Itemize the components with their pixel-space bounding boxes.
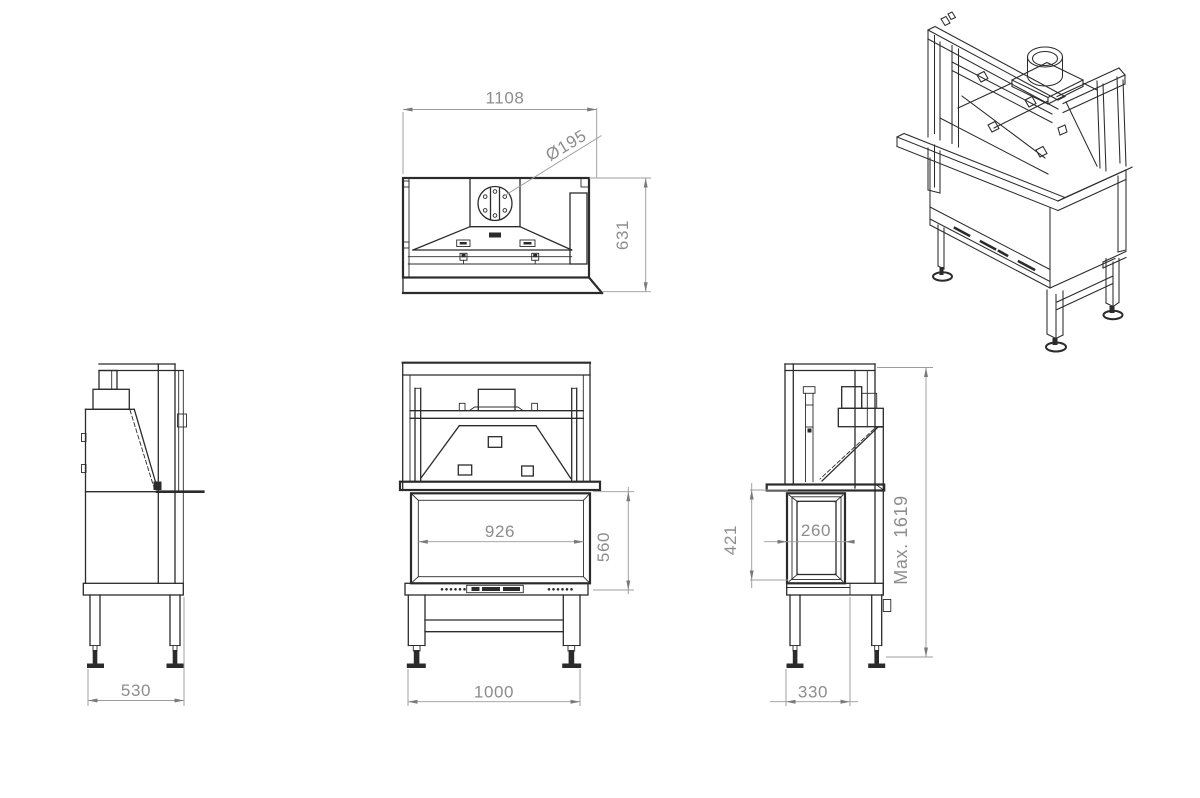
top-view-side-panel	[570, 193, 587, 264]
dimension-top-depth: 631	[589, 178, 651, 292]
dimension-side-glass-height: 421	[721, 483, 788, 588]
max-height-label: Max. 1619	[891, 495, 911, 584]
front-view-flue-collar	[478, 389, 515, 410]
drawing-sheet: 1108 Ø195 631	[0, 0, 1200, 798]
top-view-center-vent	[489, 233, 501, 238]
front-view-vent-band	[405, 583, 588, 595]
dimension-leg-depth: 330	[770, 597, 858, 706]
firebox-height-label: 560	[594, 532, 613, 562]
right-side-view: 421 260 330 Max. 1619	[721, 364, 933, 706]
left-view-flue	[99, 371, 117, 390]
side-depth-label: 530	[121, 681, 151, 700]
top-depth-label: 631	[613, 220, 632, 250]
right-view-legs	[787, 595, 886, 668]
iso-legs	[933, 225, 1123, 352]
iso-frame	[928, 12, 1065, 174]
side-glass-width-label: 260	[801, 521, 831, 540]
iso-right-frame	[1057, 68, 1126, 171]
dimension-overall-width: 1000	[408, 669, 580, 706]
isometric-view	[897, 12, 1133, 352]
leg-depth-label: 330	[798, 683, 828, 702]
glass-width-label: 926	[485, 522, 515, 541]
front-view: 926	[400, 363, 634, 706]
front-view-mantel-shelf	[400, 482, 600, 490]
technical-drawing: 1108 Ø195 631	[0, 0, 1200, 798]
flue-collar-circle	[478, 187, 512, 221]
dimension-flue-diameter: Ø195	[504, 126, 602, 196]
left-side-view: 530	[82, 364, 204, 706]
dimension-firebox-height: 560	[593, 487, 634, 594]
overall-width-label: 1000	[474, 683, 514, 702]
top-width-label: 1108	[486, 89, 525, 108]
front-view-legs	[407, 595, 581, 668]
dimension-max-height: Max. 1619	[877, 368, 933, 658]
right-view-flue	[842, 387, 862, 409]
dimension-glass-width: 926	[418, 522, 583, 544]
iso-firebox	[928, 145, 1126, 288]
side-glass-height-label: 421	[721, 525, 740, 555]
right-view-control-rod	[803, 387, 815, 482]
iso-mantel-shelf	[897, 134, 1133, 211]
flue-diameter-label: Ø195	[542, 126, 590, 165]
left-view-legs	[87, 595, 184, 668]
top-view: 1108 Ø195 631	[403, 89, 651, 294]
